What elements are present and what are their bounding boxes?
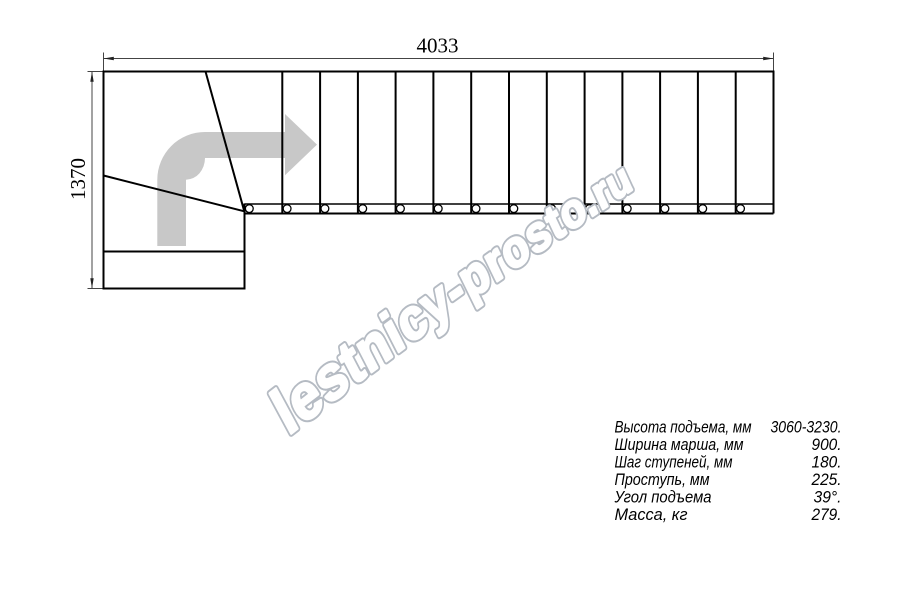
svg-text:4033: 4033	[417, 34, 459, 58]
svg-text:279.: 279.	[811, 506, 842, 524]
svg-text:Высота подъема, мм: Высота подъема, мм	[615, 419, 752, 437]
svg-text:180.: 180.	[812, 454, 842, 472]
svg-text:900.: 900.	[812, 436, 842, 454]
svg-text:Ширина марша, мм: Ширина марша, мм	[615, 436, 744, 454]
svg-text:Масса, кг: Масса, кг	[615, 506, 688, 524]
svg-text:225.: 225.	[811, 471, 842, 489]
svg-text:Шаг ступеней, мм: Шаг ступеней, мм	[615, 454, 733, 472]
svg-text:Угол подъема: Угол подъема	[614, 489, 712, 507]
svg-text:3060-3230.: 3060-3230.	[771, 419, 842, 437]
svg-text:1370: 1370	[66, 158, 90, 200]
svg-text:39°.: 39°.	[814, 489, 842, 507]
svg-text:Проступь, мм: Проступь, мм	[615, 471, 710, 489]
